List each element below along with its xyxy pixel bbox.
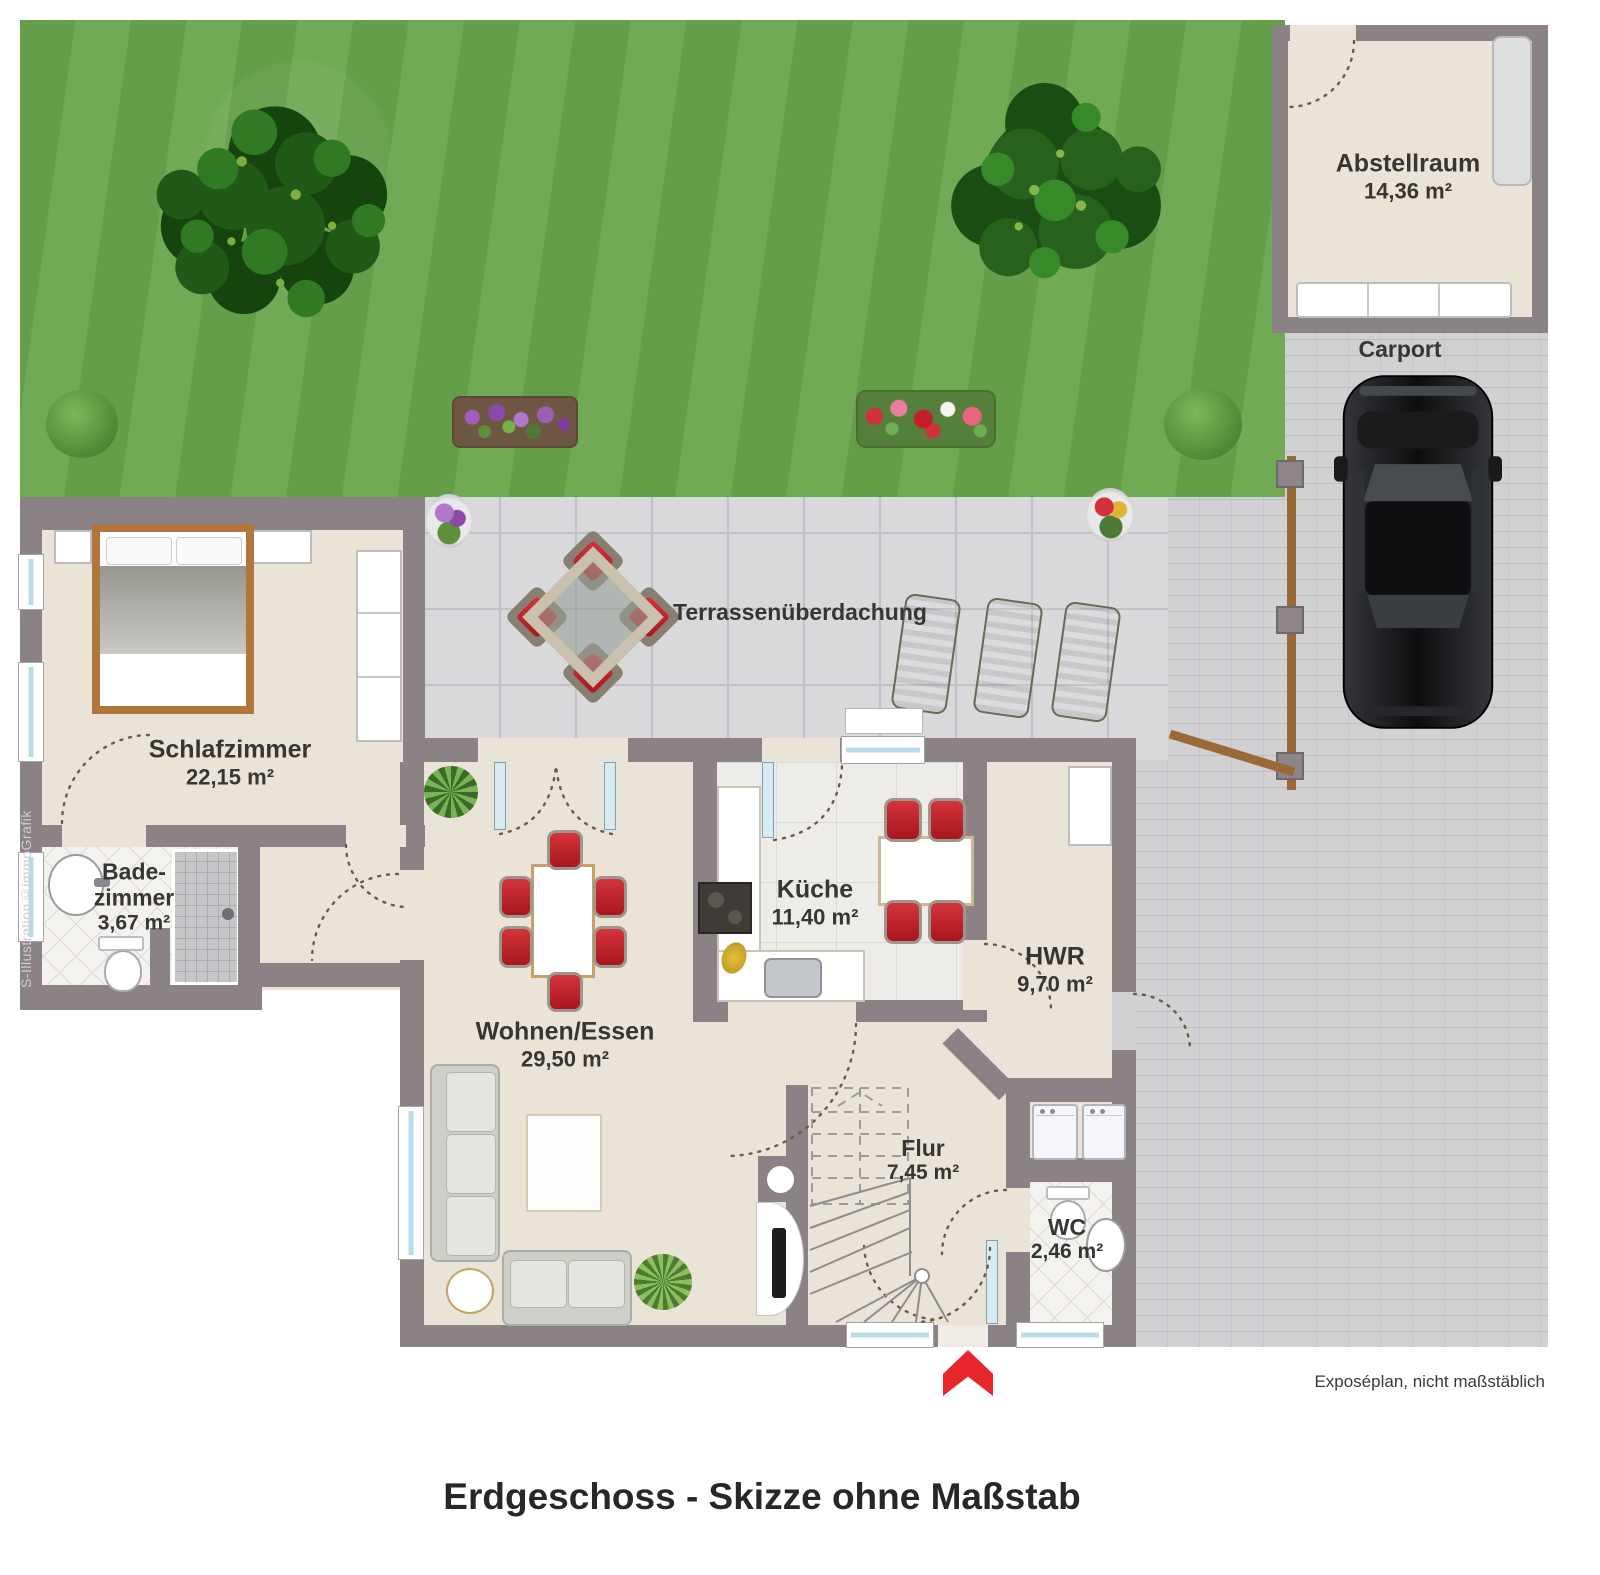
window (18, 554, 44, 610)
door-opening (1290, 25, 1356, 41)
side-paving (1168, 497, 1285, 1347)
flowerbed-purple (452, 396, 578, 448)
dryer (1082, 1104, 1126, 1160)
door-leaf (494, 762, 506, 830)
wall (1006, 1078, 1112, 1102)
toilet-tank (98, 936, 144, 951)
window (846, 1322, 934, 1348)
pillow (176, 537, 242, 565)
toilet-tank (1046, 1186, 1090, 1200)
wall (1272, 317, 1548, 333)
door-opening (762, 738, 840, 762)
window (1016, 1322, 1104, 1348)
chair (593, 926, 627, 968)
watermark: S-Illustration©immoGrafik (18, 798, 34, 988)
downlight-icon (767, 1166, 794, 1193)
rug (526, 1114, 602, 1212)
room-label-badezimmer: Bade-zimmer 3,67 m² (94, 859, 175, 936)
floorplan-canvas: Abstellraum 14,36 m² Carport Terrassenüb… (0, 0, 1600, 1575)
plant-icon (634, 1254, 692, 1310)
pergola-post (1276, 460, 1304, 488)
wall (20, 985, 262, 1010)
wall (403, 497, 425, 762)
car-icon (1334, 366, 1502, 738)
window (398, 1106, 424, 1260)
room-label-carport: Carport (1358, 336, 1441, 362)
door-opening (478, 738, 628, 762)
tree-icon (920, 60, 1190, 320)
door-opening (62, 825, 146, 847)
chair (884, 798, 922, 842)
chair (547, 830, 583, 870)
shower-head-icon (222, 908, 234, 920)
sofa (430, 1064, 500, 1262)
loveseat (502, 1250, 632, 1326)
chair (593, 876, 627, 918)
nightstand (250, 530, 312, 564)
wardrobe (356, 550, 402, 742)
tree-icon (140, 70, 410, 340)
terrace-table (522, 546, 663, 687)
chair (928, 798, 966, 842)
side-paving (1136, 760, 1168, 1347)
wall (238, 963, 424, 987)
door-opening (400, 870, 424, 960)
pillow (106, 537, 172, 565)
room-label-kueche: Küche 11,40 m² (772, 876, 859, 931)
washing-machine (1032, 1104, 1078, 1160)
chair (499, 876, 533, 918)
flowerpot-icon (426, 494, 472, 548)
chair (499, 926, 533, 968)
kitchen-sink (764, 958, 822, 998)
door-opening (1112, 992, 1136, 1050)
wall (1272, 25, 1288, 333)
door-opening (1006, 1188, 1030, 1252)
room-label-flur: Flur 7,45 m² (887, 1135, 959, 1185)
wall-stub (150, 928, 170, 1008)
hwr-cabinet (1068, 766, 1112, 846)
terrace-dining-set (518, 542, 668, 692)
flowerbed-red (856, 390, 996, 448)
storage-shelf (1492, 36, 1532, 186)
chair (928, 900, 966, 944)
side-table (446, 1268, 494, 1314)
bed (92, 524, 254, 714)
entrance-opening (938, 1325, 988, 1347)
door-leaf (604, 762, 616, 830)
room-label-abstellraum: Abstellraum 14,36 m² (1336, 150, 1480, 205)
door-opening (963, 940, 987, 1010)
chair (547, 972, 583, 1012)
window (841, 736, 925, 764)
pergola-post (1276, 606, 1304, 634)
entrance-arrow-icon (943, 1350, 993, 1396)
tv-niche (758, 1156, 808, 1202)
window-sill (845, 708, 923, 734)
kitchen-table (878, 836, 974, 906)
nightstand (54, 530, 92, 564)
door-opening (346, 825, 406, 847)
toilet (104, 950, 142, 992)
room-label-schlafzimmer: Schlafzimmer 22,15 m² (149, 736, 312, 791)
pergola-post (1276, 752, 1304, 780)
room-label-hwr: HWR 9,70 m² (1017, 943, 1093, 998)
tv-icon (772, 1228, 786, 1298)
bush-icon (1164, 388, 1242, 460)
blanket (100, 566, 246, 654)
chair (884, 900, 922, 944)
flowerpot-icon (1086, 488, 1134, 542)
stove (698, 882, 752, 934)
plant-icon (424, 766, 478, 818)
door-opening (728, 1000, 856, 1022)
dining-table (531, 864, 595, 978)
room-label-terrasse: Terrassenüberdachung (673, 599, 927, 625)
bush-icon (46, 390, 118, 458)
page-title: Erdgeschoss - Skizze ohne Maßstab (443, 1476, 1080, 1518)
wall (1532, 25, 1548, 333)
entrance-door-leaf (986, 1240, 998, 1324)
room-label-wohnen-essen: Wohnen/Essen 29,50 m² (476, 1018, 655, 1073)
footnote: Exposéplan, nicht maßstäblich (1314, 1372, 1545, 1392)
wall (1006, 1158, 1030, 1347)
door-leaf (762, 762, 774, 838)
sideboard (1296, 282, 1512, 318)
room-label-wc: WC 2,46 m² (1031, 1214, 1103, 1264)
window (18, 662, 44, 762)
